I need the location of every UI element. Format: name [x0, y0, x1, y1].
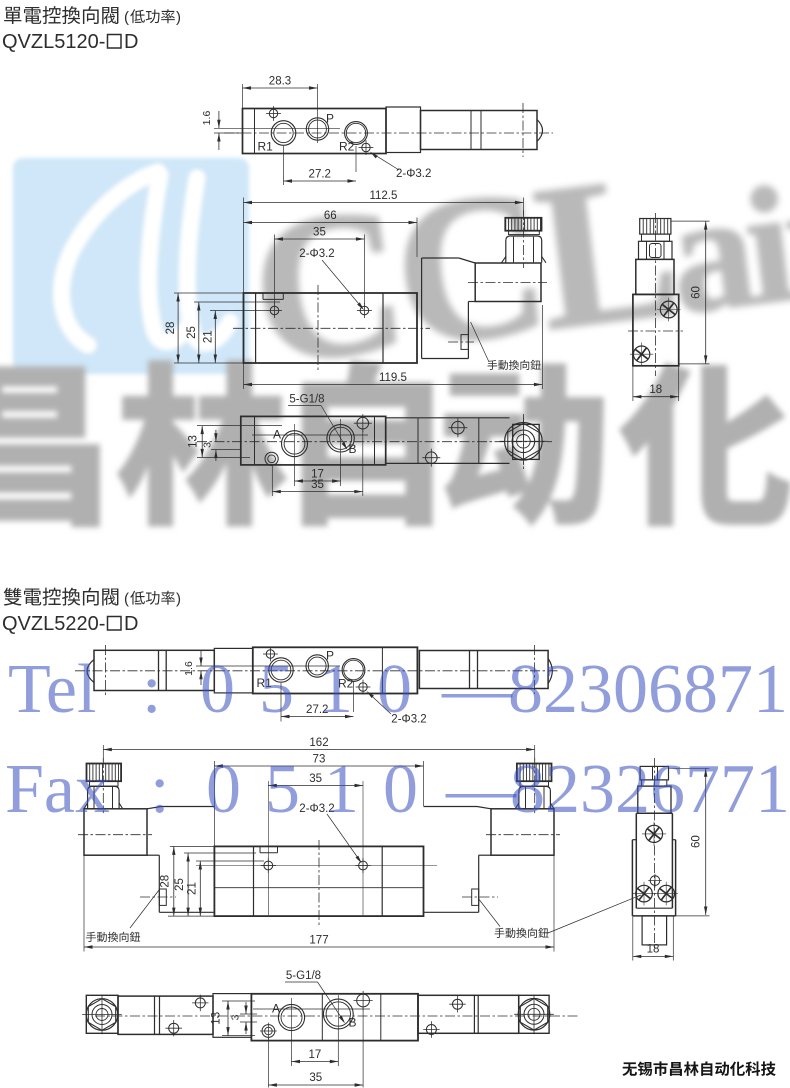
svg-text:119.5: 119.5: [379, 372, 407, 384]
svg-text:35: 35: [311, 479, 324, 491]
svg-text:): ): [176, 9, 181, 26]
svg-text:B: B: [348, 442, 356, 456]
svg-text:3: 3: [230, 1014, 242, 1020]
svg-text:60: 60: [691, 286, 703, 299]
svg-text:28: 28: [165, 322, 177, 335]
svg-text:177: 177: [309, 935, 328, 947]
svg-text:28.3: 28.3: [269, 76, 291, 88]
svg-text:R2: R2: [339, 140, 355, 154]
svg-text:R1: R1: [258, 140, 274, 154]
svg-text:5-G1/8: 5-G1/8: [289, 394, 324, 406]
svg-text:112.5: 112.5: [369, 190, 397, 202]
svg-text:1.6: 1.6: [201, 111, 213, 126]
svg-text:21: 21: [202, 330, 214, 343]
svg-text:18: 18: [649, 384, 662, 396]
svg-text:5-G1/8: 5-G1/8: [286, 970, 321, 982]
svg-text:B: B: [348, 1016, 356, 1030]
svg-text:(: (: [124, 591, 129, 608]
svg-text:17: 17: [309, 1049, 322, 1061]
svg-text:35: 35: [313, 227, 326, 239]
svg-text:2-Φ3.2: 2-Φ3.2: [299, 248, 334, 260]
svg-text:28: 28: [160, 875, 172, 888]
svg-text:25: 25: [174, 878, 186, 891]
svg-text:): ): [176, 591, 181, 608]
svg-text:2-Φ3.2: 2-Φ3.2: [396, 168, 431, 180]
svg-text:1.6: 1.6: [183, 661, 195, 676]
svg-text:P: P: [326, 112, 334, 126]
svg-text:3: 3: [202, 442, 214, 448]
svg-text:QVZL5220-: QVZL5220-: [2, 613, 105, 635]
svg-text:27.2: 27.2: [309, 169, 331, 181]
svg-text:60: 60: [691, 835, 703, 848]
svg-text:D: D: [124, 613, 138, 635]
svg-text:(: (: [124, 9, 129, 26]
svg-text:A: A: [273, 428, 281, 442]
svg-text:D: D: [124, 31, 138, 53]
svg-text:18: 18: [647, 944, 660, 956]
svg-text:66: 66: [324, 210, 337, 222]
svg-text:25: 25: [186, 326, 198, 339]
svg-text:35: 35: [309, 1072, 322, 1084]
svg-text:A: A: [272, 1002, 280, 1016]
svg-text:162: 162: [309, 737, 328, 749]
svg-text:13: 13: [188, 435, 200, 448]
svg-text:QVZL5120-: QVZL5120-: [2, 31, 105, 53]
svg-text:21: 21: [187, 882, 199, 895]
svg-text:13: 13: [211, 1012, 223, 1025]
